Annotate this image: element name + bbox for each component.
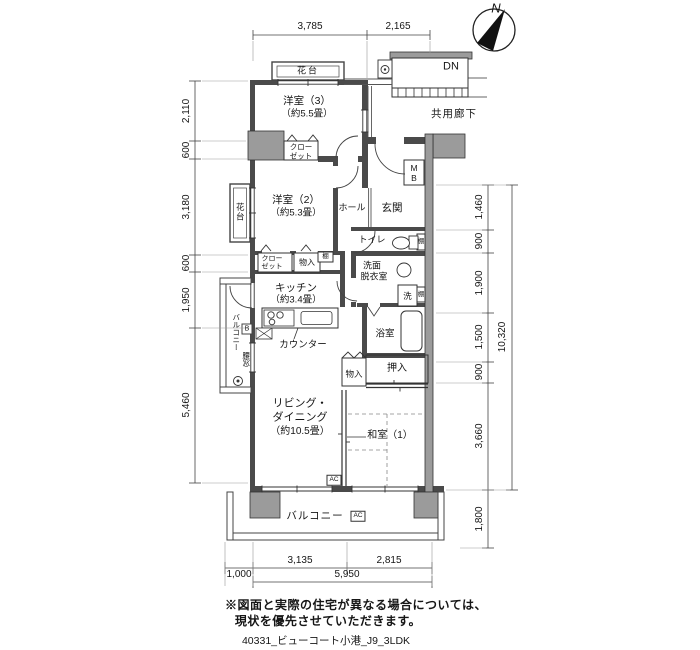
- room-western3-size: （約5.5畳）: [281, 109, 332, 119]
- toilet-label: トイレ: [358, 236, 385, 245]
- floor-plan-page: N DN 共用廊下 花台 花台 洋室（3） （約5.5畳） クロー ゼット 洋室…: [0, 0, 700, 650]
- washer-label: 洗: [403, 292, 412, 301]
- dim-bottom-1: 1,000: [226, 570, 251, 580]
- shelf-label-kitchen: 棚: [322, 254, 329, 261]
- dim-left-1: 2,110: [182, 99, 192, 123]
- closet2-label-1: クロー: [262, 256, 283, 263]
- mb-label-b: B: [411, 174, 417, 183]
- living-size: （約10.5畳）: [270, 427, 329, 437]
- compass-north-label: N: [491, 2, 500, 15]
- dim-right-total: 10,320: [498, 322, 508, 353]
- bath-label: 浴室: [375, 329, 394, 339]
- closet2-label-2: ゼット: [262, 264, 283, 271]
- washroom-label-2: 脱衣室: [360, 273, 387, 282]
- toilet-icon: [393, 236, 419, 249]
- hall-label: ホール: [338, 204, 365, 213]
- storage-ld-label: 物入: [345, 370, 362, 379]
- stairs-dn-label: DN: [443, 62, 459, 73]
- dim-right-3: 1,900: [475, 270, 485, 295]
- bathtub-icon: [401, 311, 422, 351]
- hanadai-top-label: 花台: [297, 67, 319, 76]
- dim-right-5: 900: [475, 364, 485, 381]
- dim-top-1: 3,785: [297, 22, 322, 32]
- shelf-label-toilet: 棚: [418, 239, 425, 246]
- dim-top-2: 2,165: [385, 22, 410, 32]
- room-western3-label: 洋室（3）: [283, 96, 331, 107]
- dim-bottom-3: 2,815: [376, 556, 401, 566]
- dim-left-6: 5,460: [182, 392, 192, 417]
- shelf-label-washer: 棚: [418, 292, 425, 299]
- counter-label: カウンター: [279, 340, 327, 350]
- door-arcs: [230, 136, 405, 316]
- ac-label-living: AC: [326, 475, 341, 486]
- stairs-dn: [392, 58, 487, 97]
- hatch-circle-icon: [234, 377, 243, 386]
- living-label-1: リビング・: [273, 399, 328, 410]
- disclaimer-line-2: 現状を優先させていただきます。: [235, 615, 421, 627]
- kitchen-label: キッチン: [275, 283, 317, 294]
- living-label-2: ダイニング: [273, 413, 328, 424]
- dim-right-6: 3,660: [475, 423, 485, 448]
- hanadai-left-label: 花台: [236, 203, 245, 222]
- washbasin-icon: [397, 263, 411, 277]
- hatch-b-label: B: [245, 326, 250, 333]
- balcony-left-label: バルコニー: [232, 313, 240, 351]
- tatami-lines: [348, 414, 425, 486]
- plan-caption: 40331_ビューコート小港_J9_3LDK: [242, 636, 410, 647]
- dim-left-4: 600: [182, 255, 192, 272]
- balcony-bottom-label: バルコニー: [286, 511, 343, 522]
- room-western2-label: 洋室（2）: [272, 195, 320, 206]
- dim-left-2: 600: [182, 142, 192, 159]
- dim-right-1: 1,460: [475, 194, 485, 219]
- dim-bottom-2: 3,135: [287, 556, 312, 566]
- ac-label-balcony: AC: [350, 511, 365, 522]
- dim-bottom-total: 5,950: [334, 570, 359, 580]
- closet3-label-1: クロー: [290, 143, 313, 151]
- entrance-label: 玄関: [382, 203, 403, 214]
- dim-right-7: 1,800: [475, 506, 485, 531]
- japanese-room-label: 和室（1）: [367, 431, 413, 441]
- dim-left-3: 3,180: [182, 194, 192, 219]
- dim-left-5: 1,950: [182, 287, 192, 312]
- room-western2-size: （約5.3畳）: [270, 208, 321, 218]
- washroom-label-1: 洗面: [363, 262, 381, 271]
- floor-plan-drawing: [0, 0, 700, 650]
- dim-right-2: 900: [475, 233, 485, 250]
- common-corridor-label: 共用廊下: [431, 109, 477, 120]
- mb-label-m: M: [410, 164, 417, 173]
- kitchen-size: （約3.4畳）: [270, 295, 321, 305]
- oshiire-label: 押入: [387, 364, 407, 374]
- disclaimer-line-1: ※図面と実際の住宅が異なる場合については、: [225, 599, 487, 611]
- closet3-label-2: ゼット: [290, 152, 313, 160]
- koshimado-label: 腰窓: [242, 352, 250, 367]
- dim-right-4: 1,500: [475, 324, 485, 349]
- intercom-icon: [378, 60, 392, 78]
- storage-kitchen-label: 物入: [299, 259, 315, 267]
